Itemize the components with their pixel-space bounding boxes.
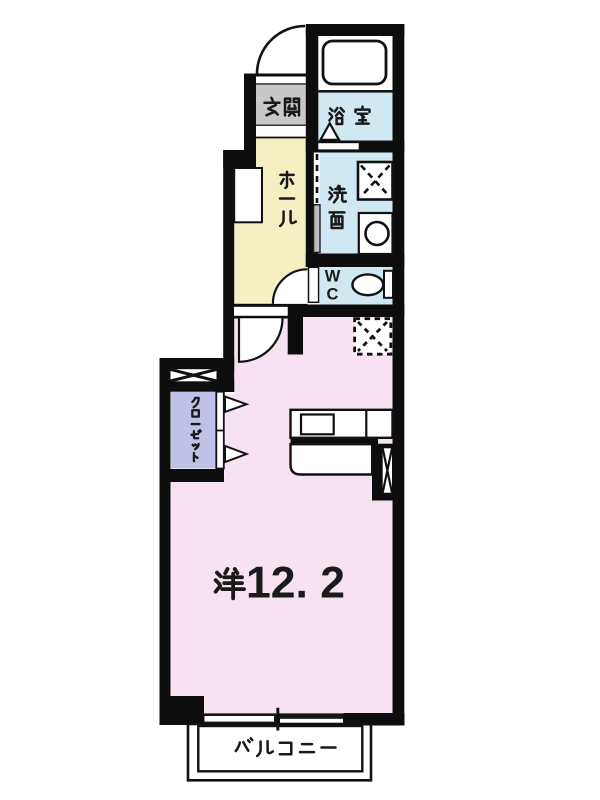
svg-text:12. 2: 12. 2 — [246, 559, 345, 608]
svg-text:C: C — [327, 286, 339, 304]
svg-text:W: W — [325, 268, 341, 286]
